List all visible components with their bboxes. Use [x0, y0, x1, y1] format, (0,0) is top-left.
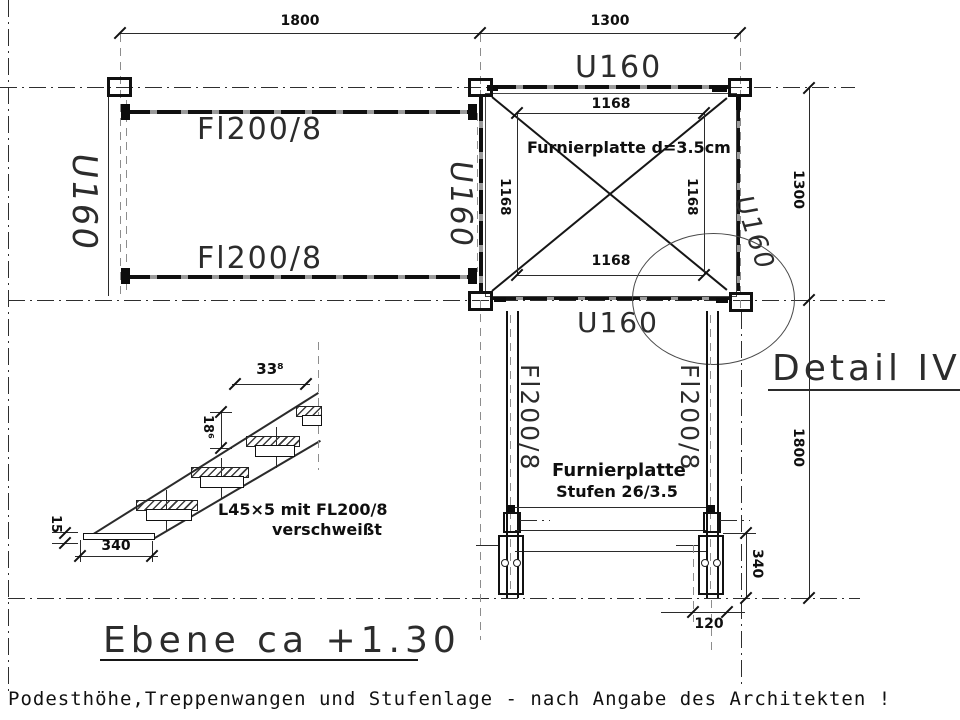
dim-line-340: [746, 533, 747, 598]
level-title: Ebene ca +1.30: [103, 620, 461, 661]
label-plywood-steps-2: Stufen 26/3.5: [552, 482, 682, 501]
dim-ext-340-stair: [80, 540, 81, 562]
frame-centerline-left: [8, 0, 9, 693]
level-title-underline: [100, 659, 418, 661]
dim-line-top: [120, 33, 741, 34]
label-plywood-platform: Furnierplatte d=3.5cm: [527, 138, 731, 157]
footer-note: Podesthöhe,Treppenwangen und Stufenlage …: [8, 688, 958, 710]
step-edge-line: [515, 530, 706, 531]
weld-mark: [468, 268, 477, 284]
u160-left-web: [108, 97, 109, 296]
dim-1300-top: 1300: [580, 13, 640, 29]
dim-line-186: [221, 412, 222, 449]
dim-ext-340: [723, 533, 756, 534]
dim-line-right: [809, 88, 810, 598]
label-stringer-right: Fl200/8: [675, 364, 704, 471]
column-top-left: [107, 77, 132, 97]
bolt-hole: [701, 559, 709, 567]
weld-mark: [712, 86, 727, 92]
step-plate: [146, 509, 192, 521]
detail-title: Detail IV: [772, 348, 960, 389]
base-bracket-left: [503, 512, 521, 533]
dim-340-base: 340: [749, 549, 765, 578]
dim-1800-top: 1800: [270, 13, 330, 29]
step-plate: [255, 445, 295, 457]
weld-mark: [736, 96, 741, 110]
dim-line-338: [232, 384, 310, 385]
label-u160-left: U160: [64, 150, 104, 253]
weld-mark: [707, 505, 715, 512]
label-stringer-left: Fl200/8: [515, 364, 544, 471]
dim-1800-right: 1800: [790, 428, 806, 467]
weld-mark: [507, 505, 515, 512]
dim-ext-340-stair: [152, 541, 153, 562]
weld-mark: [121, 104, 130, 120]
gridline-column-left: [120, 34, 121, 296]
dim-line-inner-left: [517, 113, 518, 275]
platform-beam-left: [479, 97, 483, 291]
base-centerline-mark: [720, 520, 750, 521]
base-tick-line: [476, 545, 498, 546]
label-u160-middle: U160: [443, 158, 478, 250]
dim-line-340-stair: [75, 556, 158, 557]
dim-1168-bottom: 1168: [581, 253, 641, 269]
column-top-center: [468, 78, 493, 97]
dim-1168-left: 1168: [497, 178, 513, 216]
step-edge-line: [515, 507, 706, 508]
weld-mark: [468, 104, 477, 120]
bolt-hole: [513, 559, 521, 567]
detail-title-underline: [768, 389, 960, 391]
dim-line-inner-top: [517, 113, 704, 114]
dim-186: 18⁶: [200, 415, 215, 439]
dim-340-stair: 340: [86, 538, 146, 554]
column-top-right: [728, 78, 752, 97]
step-edge-line: [515, 551, 706, 552]
dim-1168-top: 1168: [581, 96, 641, 112]
bolt-hole: [501, 559, 509, 567]
gridline-column-right-lower: [741, 312, 742, 688]
dim-15: 15: [48, 515, 63, 533]
dim-120-base: 120: [679, 616, 739, 632]
label-fl200-top: Fl200/8: [197, 112, 323, 147]
column-bottom-center: [468, 291, 493, 311]
step-plate: [302, 415, 322, 426]
dim-1300-right: 1300: [790, 170, 806, 209]
base-tick-line: [676, 545, 698, 546]
label-fl200-bottom: Fl200/8: [197, 241, 323, 276]
u160-left-hidden-edge: [126, 100, 127, 292]
base-bracket-right: [703, 512, 721, 533]
step-plate: [200, 476, 244, 488]
weld-note-line2: verschweißt: [272, 520, 382, 539]
weld-mark: [121, 268, 130, 284]
label-u160-platform-top: U160: [575, 50, 662, 85]
platform-beam-top: [492, 85, 728, 89]
centerline-base-row: [8, 598, 860, 599]
label-plywood-steps-1: Furnierplatte: [552, 460, 682, 481]
dim-1168-right: 1168: [684, 178, 700, 216]
bolt-hole: [713, 559, 721, 567]
weld-note-line1: L45×5 mit FL200/8: [218, 500, 387, 519]
base-centerline-mark: [520, 520, 550, 521]
weld-mark: [494, 297, 506, 302]
dim-338: 33⁸: [247, 360, 293, 378]
dim-line-120: [661, 612, 745, 613]
drawing-canvas: 1800 1300 Fl200/8 Fl200/8 U160 U160 1168…: [0, 0, 960, 720]
